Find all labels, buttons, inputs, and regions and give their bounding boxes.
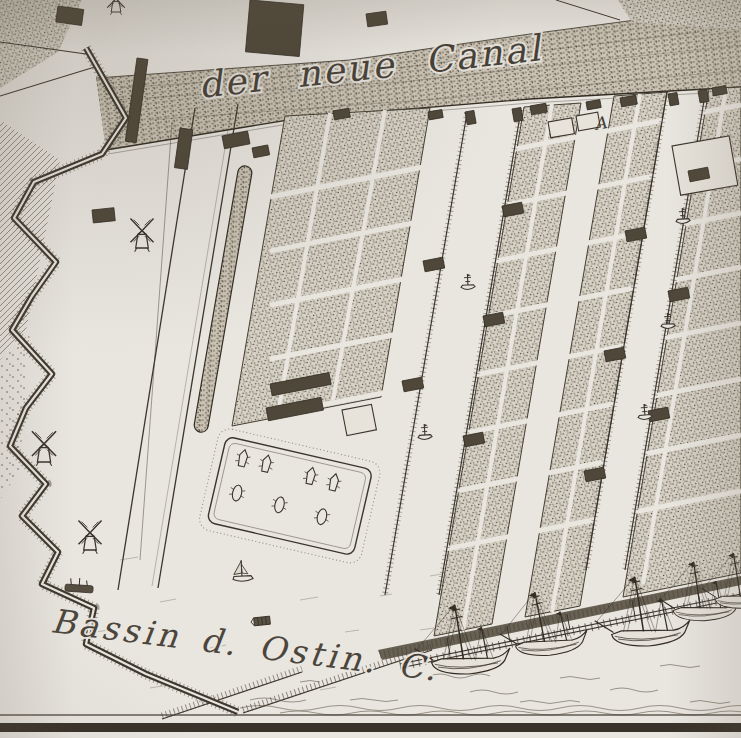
map-engraving: der neue Canal Bassin d. Ostin. C. A [0,0,741,738]
building [548,118,574,138]
barge-boat-icon [251,616,271,626]
building [245,0,303,57]
building [366,11,388,27]
building [698,89,709,102]
building [512,107,523,121]
map-frame-band [0,723,741,732]
building [465,110,476,124]
building [668,92,679,105]
building [56,6,84,25]
building [342,404,376,435]
building [92,208,115,223]
building [672,136,738,195]
